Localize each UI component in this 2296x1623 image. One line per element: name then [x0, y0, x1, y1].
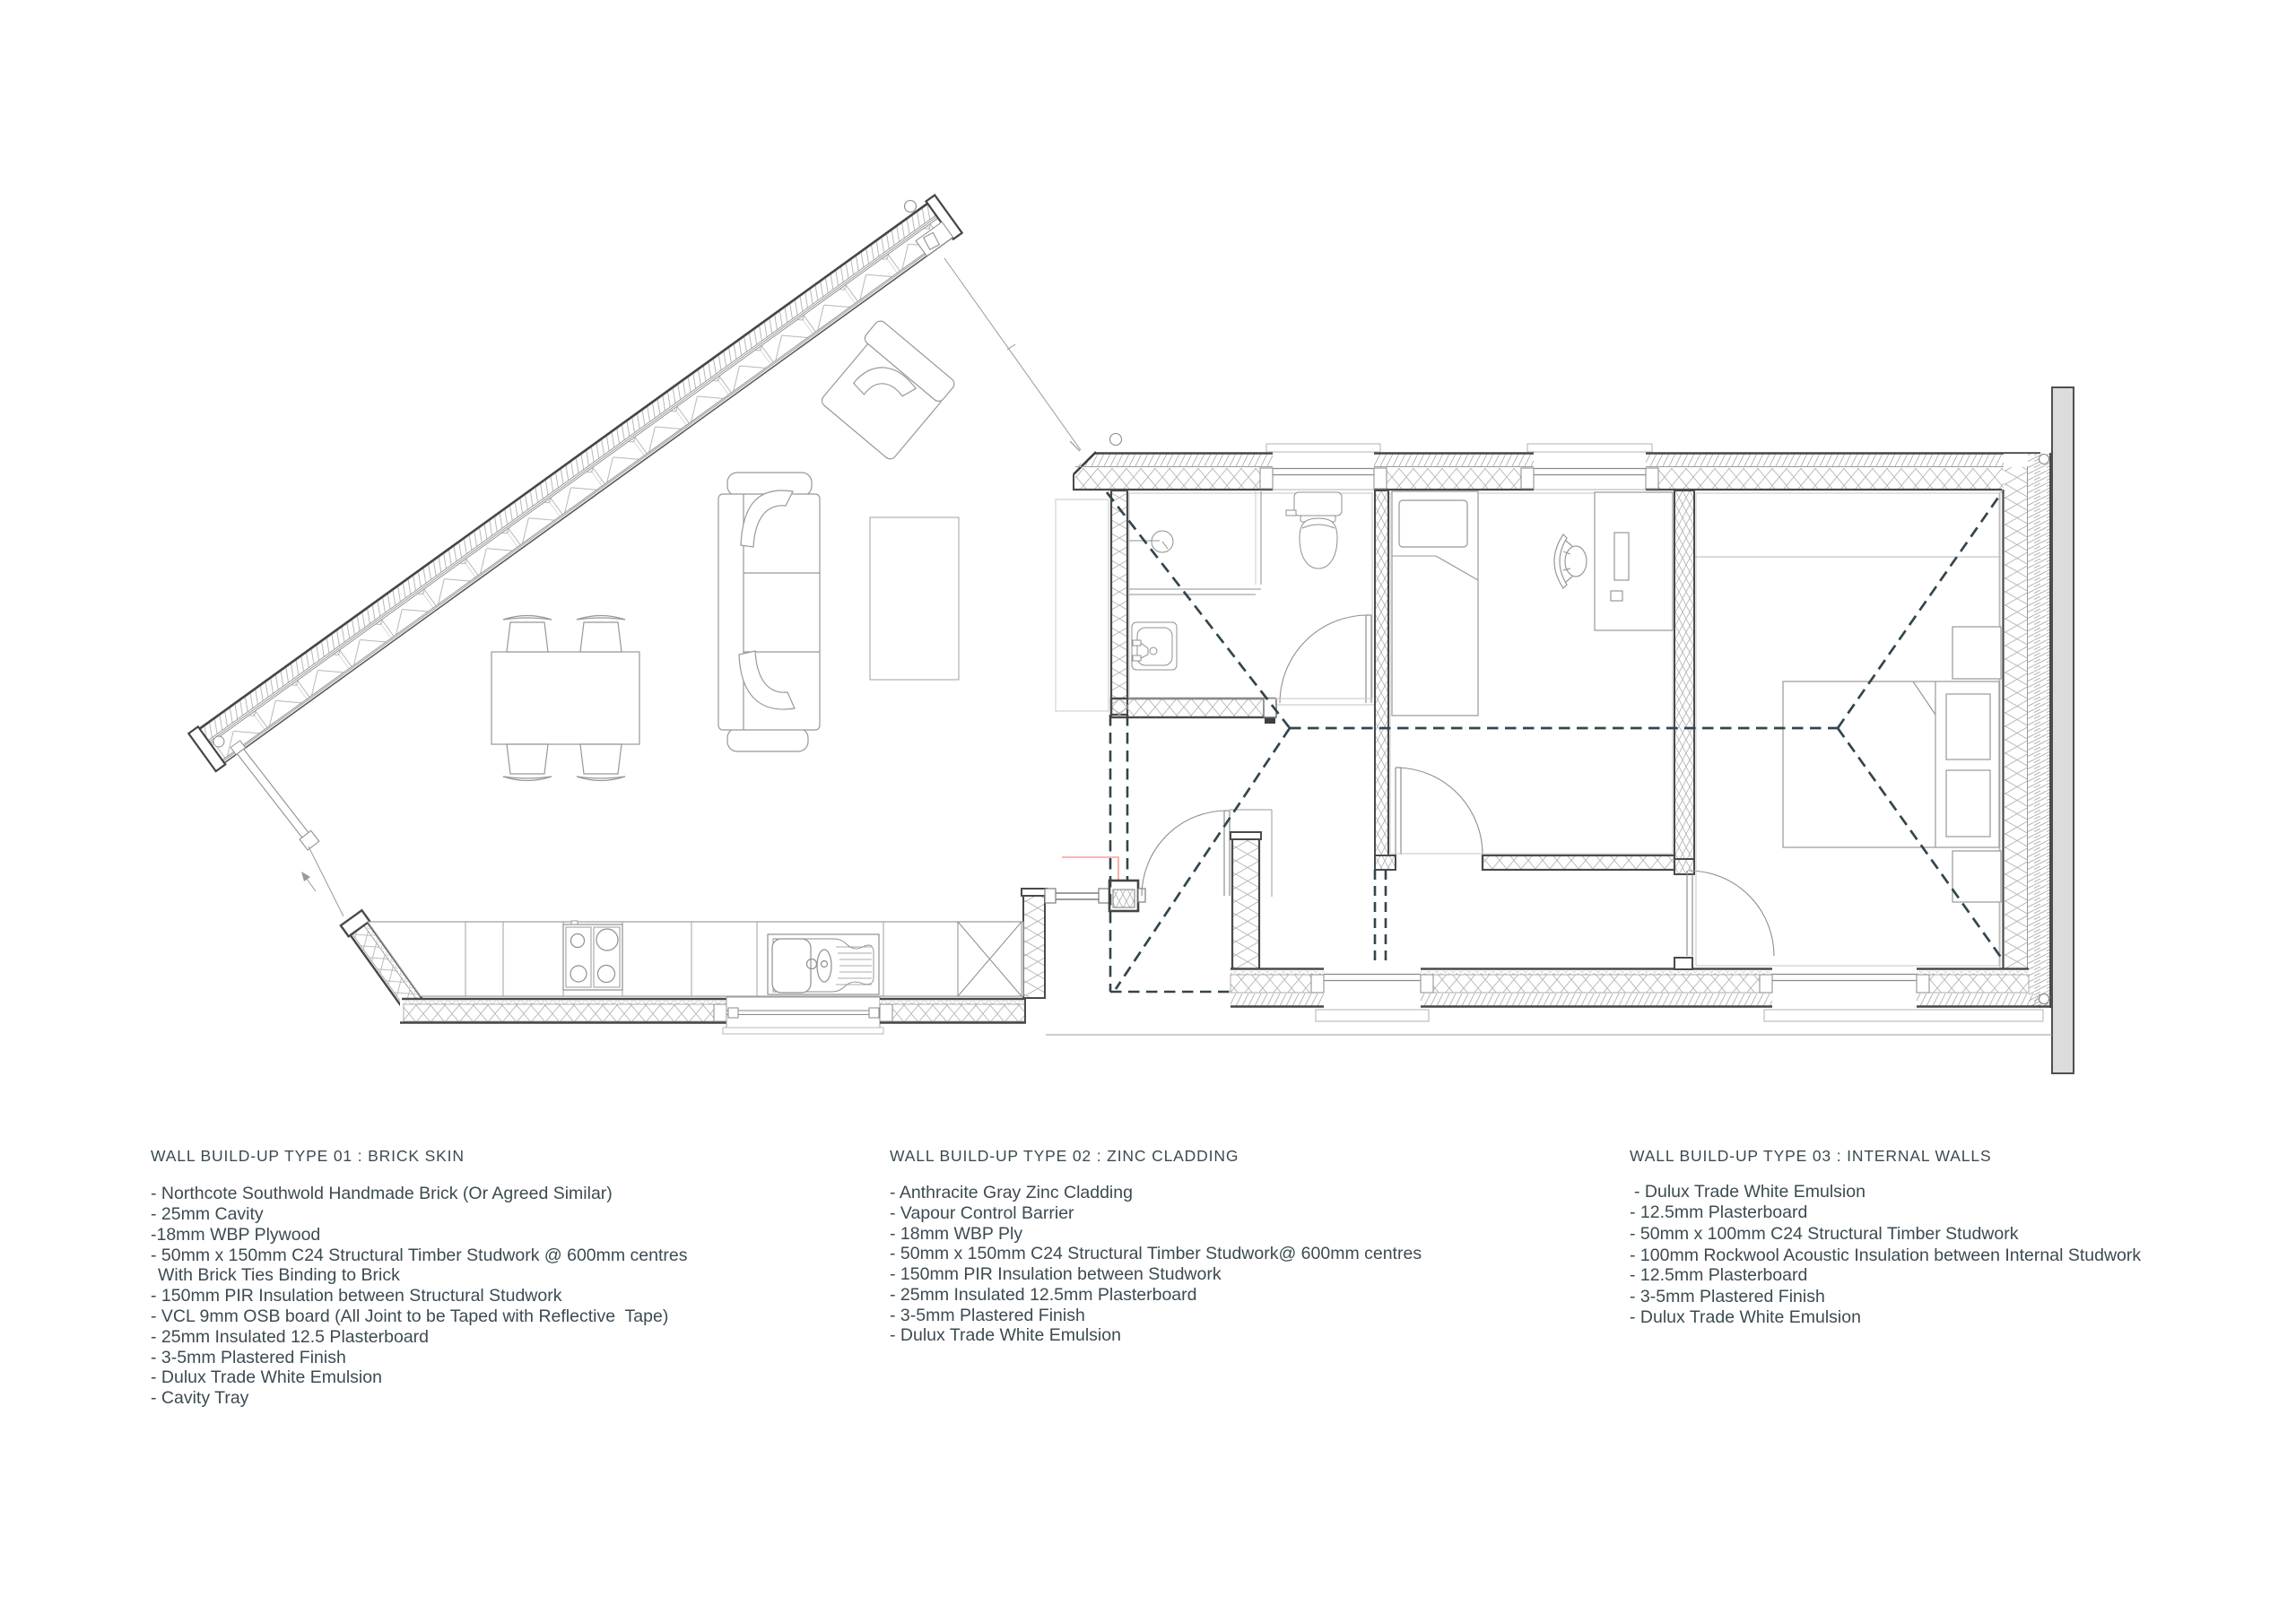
svg-text:- 18mm WBP Ply: - 18mm WBP Ply — [890, 1224, 1022, 1244]
svg-text:WALL BUILD-UP TYPE 03 : INTERN: WALL BUILD-UP TYPE 03 : INTERNAL WALLS — [1630, 1147, 1991, 1165]
svg-text:- Northcote Southwold Handmade: - Northcote Southwold Handmade Brick (Or… — [151, 1184, 613, 1203]
svg-text:- 12.5mm Plasterboard: - 12.5mm Plasterboard — [1630, 1265, 1807, 1285]
svg-text:- Dulux Trade White Emulsion: - Dulux Trade White Emulsion — [1634, 1182, 1865, 1202]
svg-text:- Vapour Control Barrier: - Vapour Control Barrier — [890, 1203, 1074, 1223]
svg-text:- 100mm Rockwool Acoustic Insu: - 100mm Rockwool Acoustic Insulation bet… — [1630, 1245, 2141, 1265]
svg-text:- 3-5mm Plastered Finish: - 3-5mm Plastered Finish — [1630, 1287, 1825, 1306]
svg-text:WALL BUILD-UP TYPE 02 : ZINC C: WALL BUILD-UP TYPE 02 : ZINC CLADDING — [890, 1147, 1239, 1165]
svg-text:- 25mm Insulated 12.5mm Plaste: - 25mm Insulated 12.5mm Plasterboard — [890, 1285, 1197, 1305]
svg-text:- 12.5mm Plasterboard: - 12.5mm Plasterboard — [1630, 1202, 1807, 1222]
svg-text:- 3-5mm Plastered Finish: - 3-5mm Plastered Finish — [890, 1306, 1085, 1325]
svg-text:- Dulux Trade White Emulsion: - Dulux Trade White Emulsion — [890, 1325, 1121, 1345]
svg-text:- Anthracite Gray Zinc Claddin: - Anthracite Gray Zinc Cladding — [890, 1183, 1133, 1202]
svg-text:- 150mm PIR Insulation between: - 150mm PIR Insulation between Structura… — [151, 1286, 562, 1306]
svg-text:- 150mm PIR Insulation between: - 150mm PIR Insulation between Studwork — [890, 1264, 1222, 1284]
svg-text:- Cavity Tray: - Cavity Tray — [151, 1388, 249, 1408]
svg-text:- 3-5mm Plastered Finish: - 3-5mm Plastered Finish — [151, 1348, 346, 1367]
svg-text:- VCL 9mm OSB board (All Joint: - VCL 9mm OSB board (All Joint to be Tap… — [151, 1306, 668, 1326]
svg-text:- 25mm Insulated 12.5 Plasterb: - 25mm Insulated 12.5 Plasterboard — [151, 1327, 429, 1347]
svg-text:- Dulux Trade White Emulsion: - Dulux Trade White Emulsion — [151, 1367, 382, 1387]
svg-text:With Brick Ties Binding to Bri: With Brick Ties Binding to Brick — [158, 1265, 400, 1285]
svg-text:- 25mm Cavity: - 25mm Cavity — [151, 1204, 264, 1224]
svg-text:- 50mm x 100mm C24 Structural: - 50mm x 100mm C24 Structural Timber Stu… — [1630, 1224, 2019, 1244]
svg-text:- 50mm x 150mm C24 Structural: - 50mm x 150mm C24 Structural Timber Stu… — [151, 1245, 688, 1265]
svg-text:- Dulux Trade White Emulsion: - Dulux Trade White Emulsion — [1630, 1307, 1861, 1327]
svg-text:-18mm WBP Plywood: -18mm WBP Plywood — [151, 1225, 320, 1245]
svg-text:- 50mm x 150mm C24 Structural: - 50mm x 150mm C24 Structural Timber Stu… — [890, 1244, 1422, 1263]
svg-text:WALL BUILD-UP TYPE 01 : BRICK: WALL BUILD-UP TYPE 01 : BRICK SKIN — [151, 1147, 465, 1165]
